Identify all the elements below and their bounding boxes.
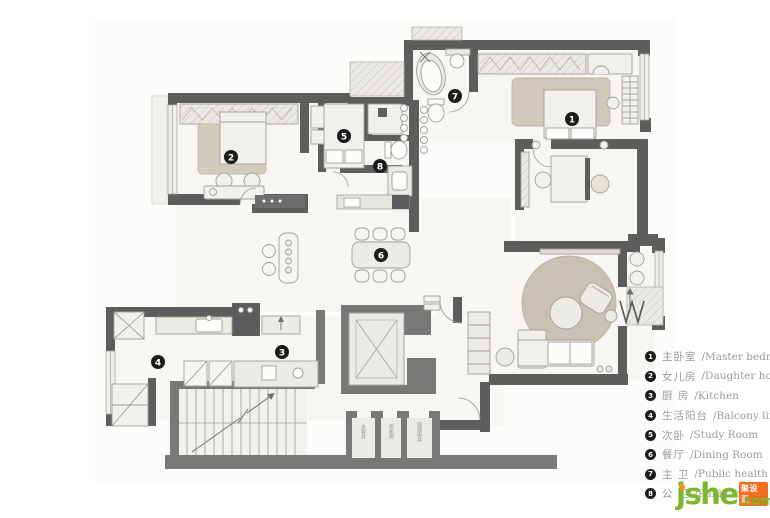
sink [196,319,222,332]
logo-tld: .com [739,494,770,509]
svg-text:5: 5 [341,133,347,143]
bar-stool [263,245,276,258]
legend-badge: 2 [645,371,656,382]
badge-3: 3 [275,345,289,359]
side-stool [605,310,617,322]
legend-label-en: /Dining Room [690,449,763,461]
shoe-cabinet [468,312,490,374]
legend-label-en: /Kitchen [694,390,739,402]
legend-row: 3 厨 房 /Kitchen [645,386,770,406]
legend-row: 4 生活阳台 /Balcony life [645,406,770,426]
svg-text:4: 4 [155,359,161,369]
badge-4: 4 [151,355,165,369]
step [424,304,440,310]
plant [630,271,644,285]
plant [630,252,644,266]
logo-dot-icon [679,484,685,490]
legend-label-zh: 生活阳台 [662,408,708,423]
legend-label-zh: 女儿房 [662,369,697,384]
staircase [179,389,307,455]
badge-7: 7 [448,89,462,103]
shaft-label-1: 水管井 [360,423,366,440]
monitor [585,158,590,200]
legend-label-zh: 餐厅 [662,447,685,462]
legend-row: 2 女儿房 /Daughter house [645,367,770,387]
shaft-label-3: 强弱电井 [416,422,422,443]
svg-text:3: 3 [279,349,285,359]
legend-label-en: /Daughter house [702,370,770,382]
legend-badge: 7 [645,469,656,480]
svg-text:2: 2 [228,154,234,164]
svg-text:7: 7 [452,93,458,103]
svg-text:8: 8 [377,163,383,173]
elevator [349,313,404,385]
legend-label-en: /Master bedroom [702,351,770,363]
stool [607,97,619,109]
nightstand [532,141,540,149]
toilet [428,99,444,122]
sink [450,54,464,68]
badge-1: 1 [565,112,579,126]
chair [591,175,609,193]
legend-label-zh: 主卧室 [662,349,697,364]
floorplan-page: 水管井 风机房 强弱电井 [0,0,770,518]
utility-shafts: 水管井 风机房 强弱电井 [352,418,432,458]
badge-8: 8 [373,159,387,173]
badge-5: 5 [337,129,351,143]
svg-text:1: 1 [569,116,575,126]
legend-row: 5 次卧 /Study Room [645,425,770,445]
legend-badge: 5 [645,430,656,441]
legend-badge: 6 [645,449,656,460]
step [424,296,440,302]
badge-2: 2 [224,150,238,164]
curtain [521,152,529,207]
legend-badge: 3 [645,390,656,401]
tv-cabinet [540,249,620,254]
legend-badge: 8 [645,488,656,499]
legend-badge: 4 [645,410,656,421]
site-logo: jsheh 聚设汇 .com [676,481,768,515]
shaft-label-2: 风机房 [388,424,394,440]
legend-label-zh: 厨 房 [662,388,689,403]
badge-6: 6 [374,248,388,262]
toilet [385,141,407,159]
legend-label-en: /Study Room [690,429,758,441]
chair [535,172,551,188]
shelf-grid [622,76,638,124]
legend-row: 6 餐厅 /Dining Room [645,445,770,465]
legend-label-zh: 次卧 [662,428,685,443]
legend-label-en: /Balcony life [713,410,770,422]
svg-text:6: 6 [378,252,384,262]
legend-row: 1 主卧室 /Master bedroom [645,347,770,367]
coffee-table [550,297,582,329]
side-table [496,348,514,366]
legend-badge: 1 [645,351,656,362]
desk [551,156,587,202]
bar-stool [263,263,276,276]
nightstand [600,141,608,149]
